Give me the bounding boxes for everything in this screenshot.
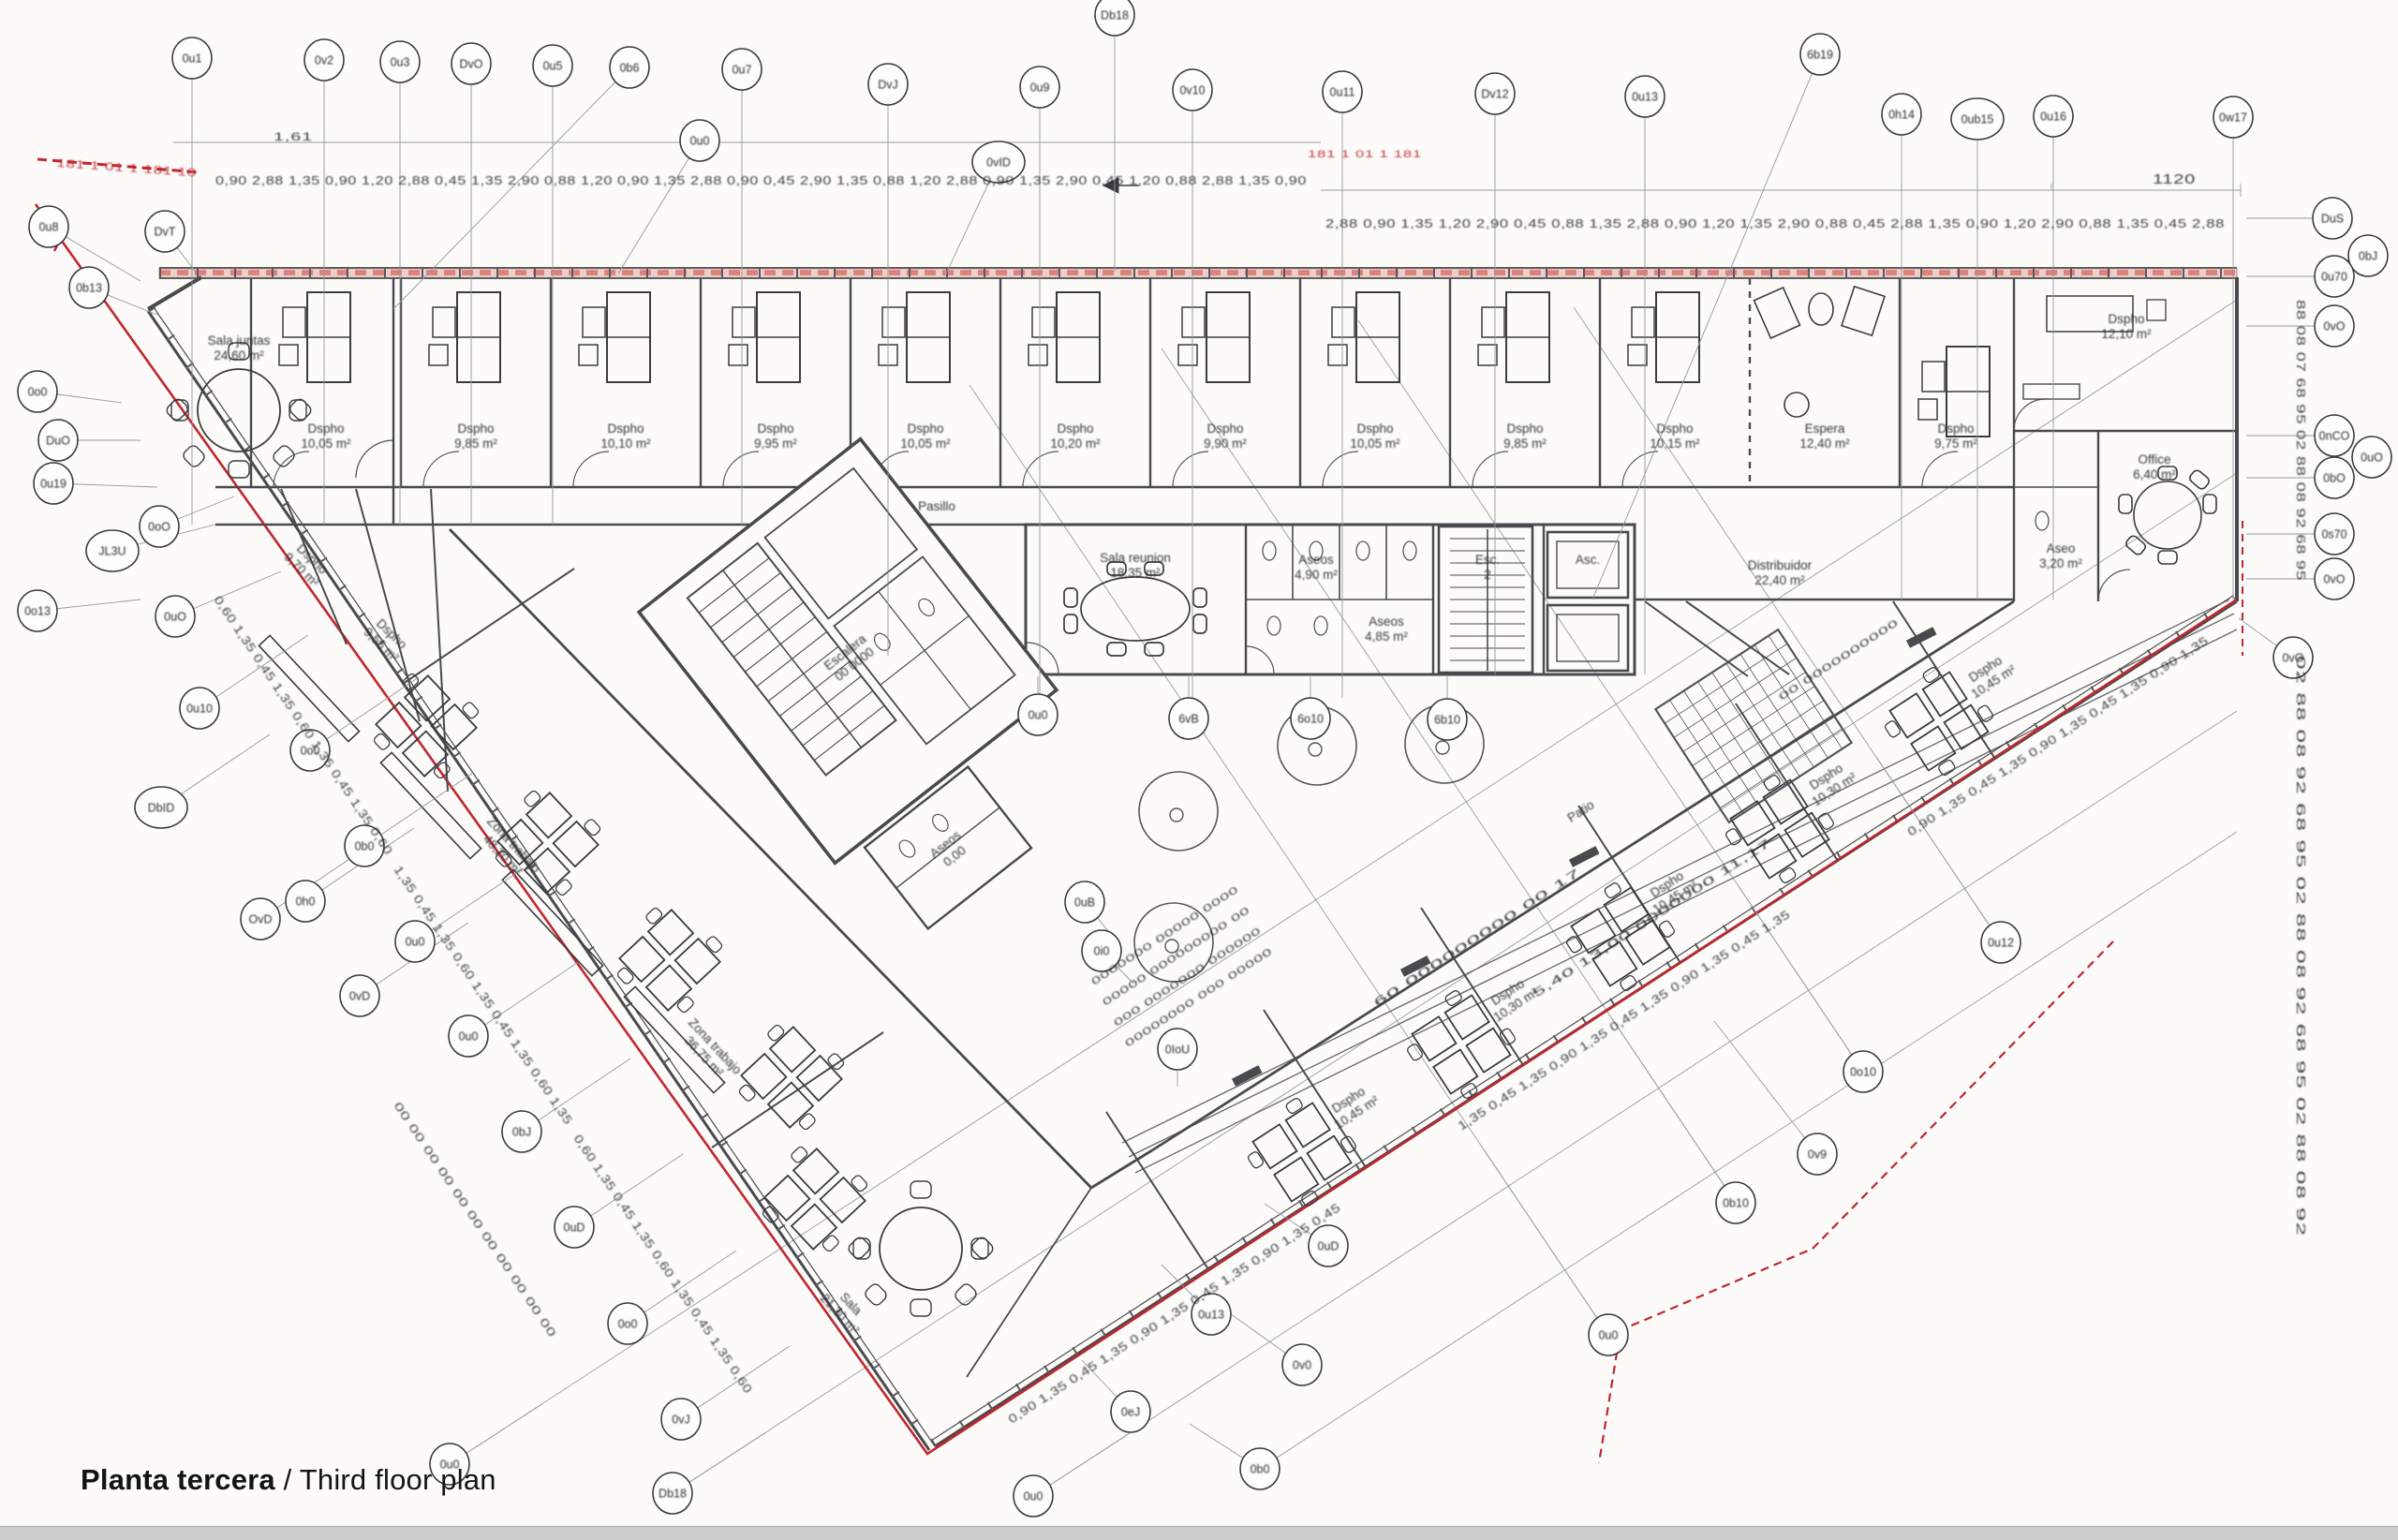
grid-bubble-label: DuO (46, 435, 70, 448)
grid-bubble-label: 0h0 (296, 896, 316, 909)
room-label: Dspho10,15 m² (1650, 422, 1700, 451)
dimension-text: 88 08 07 68 95 02 88 08 92 68 95 (2294, 300, 2308, 581)
grid-bubble-label: 0u1 (183, 52, 202, 66)
room-label: Espera12,40 m² (1799, 422, 1850, 451)
grid-bubble-label: Dv12 (1481, 88, 1508, 101)
grid-bubble-label: 0bJ (512, 1126, 531, 1139)
bubble-leader (618, 141, 700, 274)
grid-bubble-label: 6b10 (1434, 714, 1460, 727)
room-label: Dspho9,70 m² (281, 539, 333, 589)
grid-bubble-label: 6b19 (1807, 49, 1833, 62)
grid-bubble-label: 0eJ (1121, 1406, 1140, 1419)
grid-bubble-label: 0u0 (690, 135, 710, 148)
room-label: Sala reunion18,35 m² (1100, 551, 1171, 580)
dimension-text: 181 1 01 1 181 (1308, 149, 1422, 160)
grid-bubble-label: 0u0 (459, 1030, 479, 1044)
grid-bubble-label: 6o10 (1297, 713, 1324, 726)
grid-bubble-label: 0nCO (2319, 430, 2350, 443)
grid-bubble-label: 0u11 (1330, 86, 1355, 99)
lounge-furniture (1754, 287, 1885, 417)
grid-bubble-label: DvJ (878, 79, 898, 92)
grid-bubble-label: 0b13 (76, 282, 102, 295)
room-label: Dspho10,10 m² (600, 422, 651, 451)
grid-bubble-label: 0ub15 (1961, 113, 1994, 126)
right-wing-exterior-wall (931, 277, 2237, 1446)
room-label: Distribuidor22,40 m² (1748, 558, 1813, 587)
grid-bubble-label: 0u16 (2040, 111, 2066, 124)
dimension-text: 02 88 08 92 68 95 02 88 08 92 68 95 02 8… (2294, 656, 2308, 1236)
courtyard-trees (1134, 704, 1484, 982)
room-label: Esc.2 (1475, 553, 1500, 582)
grid-bubble-label: 0v2 (315, 54, 333, 67)
stair-core-1 (1439, 526, 1532, 673)
grid-bubble-label: 0u13 (1632, 91, 1658, 104)
room-label: Dspho10,30 m² (1801, 757, 1859, 808)
grid-bubble-label: 0b10 (1723, 1197, 1749, 1210)
grid-bubble-label: 0s70 (2321, 528, 2346, 541)
bubble-leader (1714, 1021, 1817, 1154)
dimension-text: 00 0000000000 (1777, 617, 1901, 703)
room-label: Sala juntas24,60 m² (208, 333, 271, 363)
middle-core-band (1026, 525, 1635, 674)
room-label: Dspho10,45 m² (1961, 649, 2019, 701)
grid-bubble-label: 0uO (164, 611, 186, 624)
grid-bubble-label: 0u0 (1029, 709, 1048, 722)
grid-bubble-label: 0IoU (1165, 1044, 1190, 1057)
grid-bubble-label: 0o0 (28, 386, 48, 399)
grid-bubble-label: 0vID (986, 156, 1011, 170)
room-label: Sala21,30 m² (818, 1281, 873, 1337)
room-label: Pasillo (918, 499, 955, 513)
grid-bubble-label: 0v9 (1808, 1148, 1827, 1162)
grid-bubble-label: Db18 (1101, 9, 1129, 22)
grid-bubble-label: 0u0 (406, 936, 425, 949)
room-label: Dspho10,05 m² (900, 422, 951, 451)
room-label: Dspho9,95 m² (754, 422, 797, 451)
grid-bubble-label: 0o10 (1850, 1066, 1876, 1079)
grid-bubble-label: OvD (249, 913, 273, 926)
grid-bubble-label: DbID (148, 802, 174, 815)
room-label: Dspho9,85 m² (454, 422, 497, 451)
grid-bubble-label: 0uD (564, 1222, 585, 1235)
round-table-8b (847, 1181, 995, 1316)
grid-bubble-label: 0uO (2361, 452, 2383, 465)
dimension-text: 0,90 2,88 1,35 0,90 1,20 2,88 0,45 1,35 … (215, 173, 1307, 187)
grid-bubble-label: Db18 (659, 1488, 687, 1501)
title-secondary: / Third floor plan (275, 1463, 496, 1496)
grid-bubble-label: 0u7 (733, 64, 752, 77)
grid-bubble-label: 0oO (148, 521, 170, 534)
grid-bubble-label: 0vD (349, 990, 370, 1003)
grid-bubble-label: 0v10 (1179, 84, 1205, 97)
right-wing-partitions (1106, 601, 1995, 1269)
room-label: Dspho10,05 m² (301, 422, 351, 451)
bubble-leader (1739, 886, 1863, 1072)
grid-bubble-label: 0u8 (39, 221, 59, 234)
grid-bubble-label: 0vO (2324, 320, 2346, 333)
drawing-sheet: 0u10v20u3DvO0u50b60u7DvJ0u90v100u11Dv120… (0, 0, 2398, 1540)
grid-bubble-label: 0i0 (1094, 945, 1110, 958)
dimension-text: 0,90 1,35 0,45 1,35 0,90 1,35 0,45 1,35 … (1005, 1200, 1342, 1426)
bubble-leader (1484, 1149, 1608, 1335)
grid-bubble-label: 0u19 (40, 478, 67, 491)
grid-bubble-label: 0w17 (2219, 111, 2247, 125)
grid-bubble-label: 0vJ (672, 1414, 689, 1427)
title-primary: Planta tercera (81, 1463, 275, 1496)
grid-bubble-label: 0bO (2323, 472, 2346, 485)
grid-bubble-label: 0u12 (1988, 937, 2014, 950)
grid-bubble-label: 0o13 (24, 605, 51, 618)
room-label: Aseo3,20 m² (2039, 541, 2082, 570)
dimension-text: 1,61 (274, 130, 313, 143)
room-label: Office6,40 m² (2133, 452, 2176, 481)
dimension-text: 1120 (2153, 171, 2196, 187)
dimension-text: 181 1 01 1 181 10 (56, 156, 198, 179)
grid-bubble-label: DvO (460, 58, 483, 71)
grid-bubble-label: 0u3 (391, 56, 410, 69)
left-wing-credenzas (259, 635, 724, 1092)
grid-bubble-label: 0u5 (543, 60, 563, 73)
room-label: Aseos4,85 m² (1365, 615, 1408, 644)
floor-plan-drawing: 0u10v20u3DvO0u50b60u7DvJ0u90v100u11Dv120… (0, 0, 2398, 1540)
grid-bubble-label: 6vB (1178, 713, 1199, 726)
drawing-title: Planta tercera / Third floor plan (81, 1463, 496, 1497)
grid-bubble-label: JL3U (98, 545, 126, 558)
grid-bubble-label: 0o0 (618, 1318, 638, 1331)
room-label: Patio (1565, 798, 1597, 825)
room-label: Dspho9,75 m² (1934, 422, 1977, 451)
grid-bubble-label: 0u0 (1024, 1490, 1044, 1503)
grid-bubble-label: 0uB (1074, 896, 1095, 910)
round-table-8 (165, 343, 313, 478)
room-label: Dspho10,05 m² (1350, 422, 1400, 451)
room-label: Dspho10,45 m² (1324, 1080, 1382, 1132)
dimension-text: 2,88 0,90 1,35 1,20 2,90 0,45 0,88 1,35 … (1325, 216, 2225, 230)
room-label: Zona trabajo36,75 m² (674, 1015, 744, 1088)
room-label: Asc. (1576, 553, 1600, 567)
room-label: Dspho10,20 m² (1050, 422, 1101, 451)
grid-bubble-label: 0u0 (1599, 1329, 1619, 1342)
grid-bubble-label: 0u70 (2321, 271, 2347, 284)
sheet-edge-strip (0, 1526, 2398, 1540)
room-label: Aseos4,90 m² (1295, 553, 1338, 582)
grid-bubble-label: 0u9 (1030, 81, 1050, 95)
grid-bubble-label: 0u13 (1198, 1309, 1224, 1322)
dimension-text: 1,35 0,45 1,35 0,60 1,35 0,45 1,35 0,60 … (392, 863, 576, 1127)
grid-bubble-label: 0vO (2324, 573, 2346, 586)
grid-bubble-label: 0h14 (1888, 109, 1915, 122)
grid-bubble-label: 0b0 (1251, 1463, 1270, 1476)
grid-bubble-label: 0uD (1318, 1240, 1340, 1253)
grid-bubble-label: DuS (2321, 213, 2344, 226)
room-label: Dspho9,85 m² (1503, 422, 1547, 451)
grid-bubble-label: 0b0 (355, 840, 375, 853)
grid-bubble-label: DvT (155, 226, 176, 239)
room-label: Dspho9,90 m² (1204, 422, 1247, 451)
bubble-leader (1611, 1017, 1736, 1203)
grid-bubble-label: 0v0 (1293, 1359, 1311, 1372)
room-label: Dspho12,10 m² (2101, 312, 2152, 341)
grid-bubble-label: 0u10 (186, 703, 213, 716)
bubble-leader (1592, 54, 1820, 600)
grid-bubble-label: 0b6 (620, 62, 640, 75)
office-desks (279, 292, 1990, 437)
grid-bubble-label: 0bJ (2359, 250, 2377, 263)
dimension-text: 0,60 1,35 0,45 1,35 0,60 1,35 0,45 1,35 … (571, 1132, 756, 1396)
